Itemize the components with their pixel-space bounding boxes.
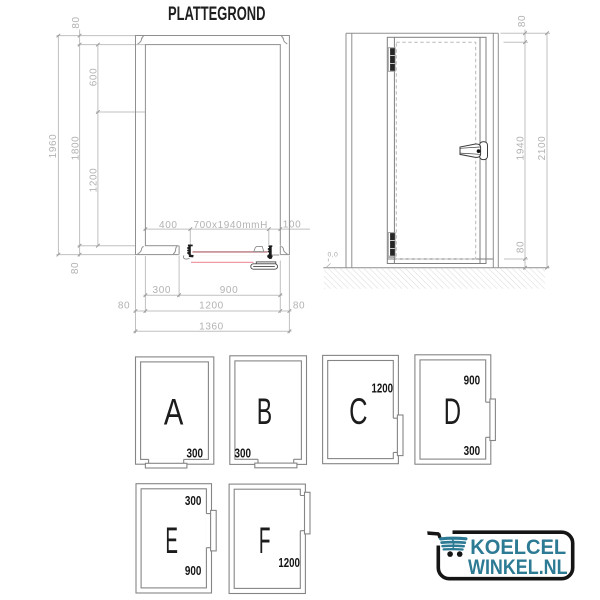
svg-text:100: 100 — [283, 220, 302, 231]
svg-text:80: 80 — [70, 262, 81, 274]
svg-text:80: 80 — [516, 241, 527, 253]
svg-text:1200: 1200 — [199, 301, 224, 312]
svg-text:1940: 1940 — [516, 136, 527, 161]
svg-text:1960: 1960 — [48, 134, 59, 159]
svg-text:D: D — [444, 391, 461, 432]
svg-text:A: A — [164, 390, 184, 432]
svg-text:B: B — [257, 391, 272, 432]
svg-text:1200: 1200 — [278, 556, 300, 570]
svg-text:900: 900 — [220, 285, 239, 296]
svg-text:900: 900 — [464, 374, 481, 388]
svg-text:2100: 2100 — [537, 136, 548, 161]
svg-text:900: 900 — [185, 564, 202, 578]
svg-text:WINKEL.NL: WINKEL.NL — [468, 556, 568, 579]
svg-text:1800: 1800 — [70, 136, 81, 161]
svg-text:300: 300 — [234, 447, 251, 461]
svg-text:300: 300 — [185, 494, 202, 508]
svg-text:C: C — [349, 391, 367, 432]
svg-text:300: 300 — [153, 285, 172, 296]
svg-text:80: 80 — [71, 16, 82, 28]
svg-text:1200: 1200 — [88, 168, 99, 193]
svg-text:E: E — [165, 520, 178, 561]
svg-text:1200: 1200 — [371, 382, 393, 396]
svg-text:300: 300 — [464, 444, 481, 458]
svg-text:80: 80 — [517, 15, 528, 27]
svg-text:PLATTEGROND: PLATTEGROND — [168, 4, 266, 25]
svg-text:700x1940mmH: 700x1940mmH — [193, 220, 267, 231]
svg-text:F: F — [259, 520, 271, 561]
svg-text:0,0: 0,0 — [328, 252, 339, 259]
svg-text:300: 300 — [187, 447, 204, 461]
svg-text:1360: 1360 — [199, 322, 224, 333]
svg-text:400: 400 — [159, 220, 178, 231]
svg-text:80: 80 — [118, 301, 130, 312]
svg-text:80: 80 — [293, 301, 305, 312]
svg-text:600: 600 — [89, 68, 100, 87]
